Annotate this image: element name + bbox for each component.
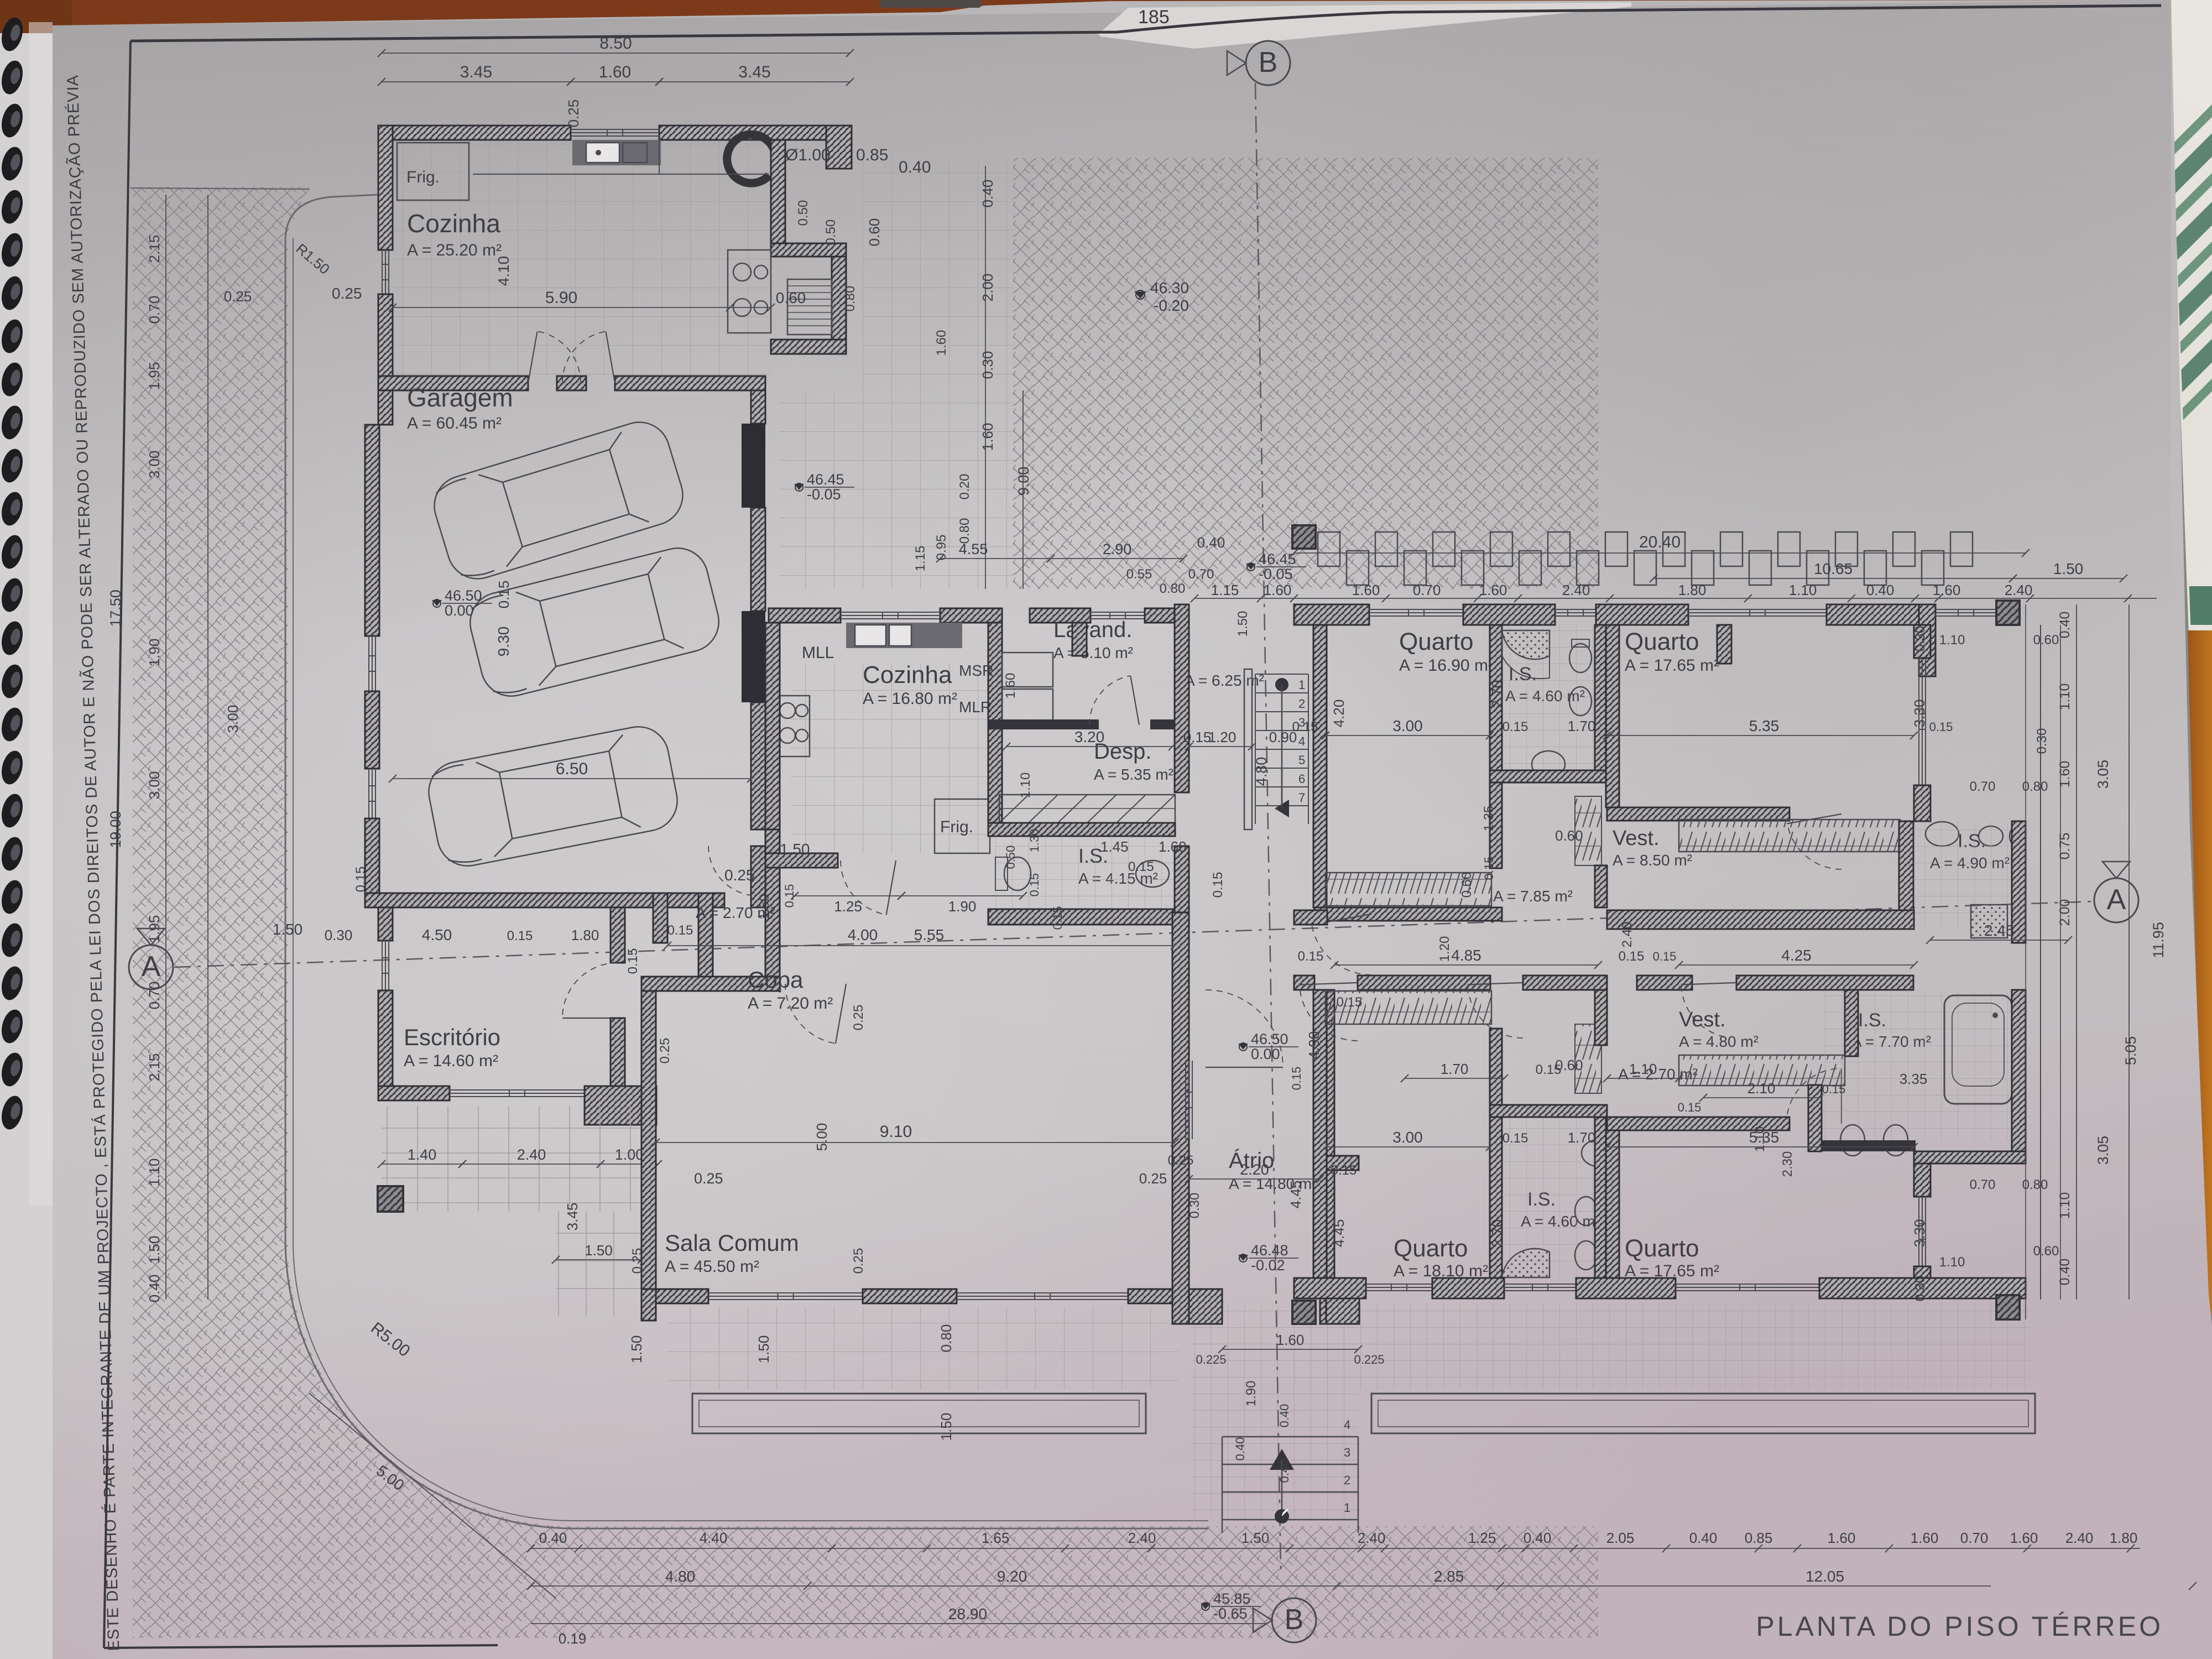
- svg-text:5.55: 5.55: [914, 926, 945, 943]
- svg-text:3.20: 3.20: [1074, 728, 1105, 745]
- svg-text:4.80: 4.80: [665, 1568, 696, 1585]
- svg-text:46.45: 46.45: [807, 471, 844, 488]
- svg-text:0.70: 0.70: [1413, 582, 1441, 598]
- svg-text:17.50: 17.50: [107, 589, 124, 627]
- svg-text:-0.20: -0.20: [1154, 297, 1189, 314]
- svg-text:0.40: 0.40: [2057, 1259, 2073, 1286]
- svg-text:0.80: 0.80: [2022, 1177, 2048, 1192]
- svg-text:0.70: 0.70: [1970, 1177, 1996, 1192]
- svg-text:2.15: 2.15: [146, 235, 163, 263]
- svg-text:1.00: 1.00: [615, 1146, 644, 1163]
- svg-text:1.70: 1.70: [1441, 1061, 1469, 1077]
- svg-text:0.25: 0.25: [851, 1248, 866, 1274]
- svg-text:2.40: 2.40: [1620, 922, 1635, 948]
- svg-text:2.15: 2.15: [146, 1053, 163, 1082]
- svg-text:5.35: 5.35: [1749, 1129, 1780, 1146]
- svg-text:0.15: 0.15: [1536, 1062, 1562, 1077]
- svg-text:MLR: MLR: [959, 698, 992, 716]
- svg-text:0.25: 0.25: [332, 285, 362, 302]
- svg-text:3.30: 3.30: [1911, 1219, 1928, 1248]
- svg-text:Copa: Copa: [748, 967, 804, 993]
- svg-text:11.95: 11.95: [2150, 922, 2167, 958]
- svg-text:1.80: 1.80: [571, 927, 599, 943]
- svg-text:0.15: 0.15: [353, 867, 368, 893]
- svg-text:1.15: 1.15: [913, 546, 928, 572]
- svg-text:0.25: 0.25: [1168, 1153, 1194, 1168]
- svg-text:0.40: 0.40: [979, 180, 996, 208]
- svg-text:0.25: 0.25: [565, 100, 582, 128]
- svg-text:-0.65: -0.65: [1213, 1605, 1248, 1622]
- svg-text:0.40: 0.40: [1866, 582, 1895, 598]
- svg-text:2.40: 2.40: [1358, 1530, 1386, 1546]
- svg-text:A: A: [2107, 884, 2126, 916]
- svg-text:4.80: 4.80: [1253, 757, 1270, 786]
- svg-text:4.85: 4.85: [1451, 947, 1481, 964]
- svg-text:0.50: 0.50: [1004, 846, 1018, 869]
- svg-text:1.15: 1.15: [1211, 582, 1239, 598]
- svg-text:3.45: 3.45: [460, 63, 492, 81]
- svg-text:1.60: 1.60: [1276, 1332, 1305, 1348]
- svg-text:1.10: 1.10: [1629, 1061, 1657, 1077]
- svg-text:5: 5: [1298, 753, 1305, 767]
- svg-text:6.50: 6.50: [556, 760, 588, 778]
- svg-text:28.90: 28.90: [948, 1605, 987, 1623]
- svg-text:2.30: 2.30: [1780, 1151, 1795, 1177]
- svg-text:0.15: 0.15: [1503, 1131, 1528, 1146]
- svg-text:0.15: 0.15: [1822, 1082, 1846, 1096]
- svg-text:1.50: 1.50: [2053, 560, 2084, 577]
- svg-text:45.85: 45.85: [1213, 1590, 1251, 1607]
- svg-text:46.48: 46.48: [1251, 1242, 1288, 1259]
- svg-text:0.60: 0.60: [2033, 633, 2059, 648]
- svg-text:1.10: 1.10: [146, 1159, 163, 1187]
- svg-text:0.25: 0.25: [694, 1170, 723, 1187]
- svg-text:3.35: 3.35: [1900, 1071, 1928, 1087]
- svg-text:1.50: 1.50: [938, 1413, 954, 1441]
- svg-text:19.00: 19.00: [107, 811, 124, 848]
- svg-text:MLL: MLL: [802, 644, 834, 662]
- svg-text:1.10: 1.10: [1018, 773, 1033, 799]
- svg-text:0.15: 0.15: [1292, 719, 1318, 734]
- svg-text:3.00: 3.00: [1392, 1129, 1423, 1146]
- svg-text:1.25: 1.25: [1468, 1530, 1496, 1546]
- svg-text:12.05: 12.05: [1806, 1568, 1844, 1585]
- svg-text:185: 185: [1138, 7, 1170, 28]
- svg-text:46.50: 46.50: [1251, 1031, 1288, 1047]
- svg-text:0.75: 0.75: [2057, 833, 2073, 860]
- svg-text:4: 4: [1344, 1418, 1350, 1432]
- svg-text:0.60: 0.60: [1459, 872, 1474, 898]
- svg-text:0.15: 0.15: [1128, 859, 1154, 874]
- svg-text:Quarto: Quarto: [1399, 628, 1474, 655]
- svg-text:0.15: 0.15: [667, 923, 693, 938]
- svg-text:0.15: 0.15: [1503, 719, 1528, 734]
- svg-text:1.65: 1.65: [982, 1530, 1010, 1546]
- svg-text:1.60: 1.60: [1479, 582, 1507, 598]
- svg-text:0.19: 0.19: [559, 1630, 587, 1647]
- svg-text:1.60: 1.60: [1911, 1530, 1939, 1546]
- svg-text:5.05: 5.05: [2122, 1036, 2139, 1066]
- svg-text:0.15: 0.15: [1331, 1163, 1357, 1178]
- svg-text:Frig.: Frig.: [406, 168, 440, 186]
- svg-text:9.10: 9.10: [880, 1123, 912, 1141]
- svg-text:A = 8.50 m²: A = 8.50 m²: [1613, 852, 1692, 869]
- svg-text:0.80: 0.80: [2022, 779, 2048, 794]
- svg-text:0.25: 0.25: [630, 1248, 645, 1274]
- svg-text:1.60: 1.60: [979, 423, 996, 451]
- svg-text:A = 5.10 m²: A = 5.10 m²: [1053, 644, 1133, 661]
- svg-text:2.40: 2.40: [517, 1146, 546, 1163]
- svg-text:0.15: 0.15: [1929, 720, 1953, 734]
- svg-text:0.50: 0.50: [796, 200, 811, 226]
- svg-text:0.40: 0.40: [1233, 1437, 1247, 1461]
- svg-text:2: 2: [1344, 1473, 1350, 1487]
- svg-text:1.60: 1.60: [599, 63, 631, 81]
- svg-text:Quarto: Quarto: [1394, 1235, 1468, 1262]
- svg-text:0.40: 0.40: [146, 1275, 163, 1303]
- svg-text:2.20: 2.20: [1240, 1161, 1269, 1178]
- svg-text:0.60: 0.60: [776, 289, 806, 306]
- svg-text:9.00: 9.00: [1015, 467, 1032, 496]
- svg-text:4.20: 4.20: [1331, 700, 1347, 728]
- svg-text:0.15: 0.15: [1051, 906, 1065, 930]
- svg-text:A: A: [142, 951, 161, 983]
- svg-text:Vest.: Vest.: [1613, 827, 1660, 850]
- svg-text:0.70: 0.70: [146, 296, 163, 324]
- svg-text:2.10: 2.10: [1747, 1080, 1776, 1097]
- svg-text:0.40: 0.40: [539, 1530, 567, 1546]
- svg-text:A = 16.90 m²: A = 16.90 m²: [1399, 656, 1494, 675]
- svg-text:0.15: 0.15: [1211, 872, 1225, 898]
- svg-text:4.25: 4.25: [1781, 947, 1812, 964]
- svg-text:B: B: [1285, 1604, 1304, 1636]
- svg-text:3.45: 3.45: [564, 1203, 581, 1231]
- svg-text:Frig.: Frig.: [940, 818, 973, 836]
- svg-text:1.60: 1.60: [1159, 838, 1187, 855]
- svg-text:-0.02: -0.02: [1251, 1257, 1285, 1274]
- svg-text:-0.05: -0.05: [1259, 566, 1293, 582]
- svg-text:1.60: 1.60: [1264, 582, 1292, 598]
- svg-text:2.00: 2.00: [979, 274, 996, 302]
- svg-text:9.20: 9.20: [997, 1568, 1027, 1585]
- svg-text:2.40: 2.40: [2065, 1530, 2094, 1546]
- svg-text:0.70: 0.70: [1960, 1530, 1989, 1546]
- svg-text:1.60: 1.60: [1828, 1530, 1856, 1546]
- svg-text:0.30: 0.30: [2034, 728, 2049, 754]
- svg-text:1.20: 1.20: [1437, 936, 1452, 962]
- svg-text:0.70: 0.70: [1970, 779, 1996, 794]
- svg-text:1.10: 1.10: [2057, 1192, 2073, 1219]
- svg-text:0.70: 0.70: [1188, 567, 1214, 582]
- svg-text:0.30: 0.30: [325, 927, 353, 943]
- svg-text:1.25: 1.25: [834, 898, 862, 915]
- svg-text:1.35: 1.35: [1481, 806, 1496, 832]
- svg-text:Quarto: Quarto: [1625, 628, 1699, 655]
- svg-text:0.15: 0.15: [1298, 949, 1324, 964]
- svg-text:0.15: 0.15: [1653, 950, 1677, 963]
- svg-text:46.45: 46.45: [1259, 551, 1296, 567]
- svg-text:1.90: 1.90: [1244, 1381, 1259, 1407]
- svg-text:Garagem: Garagem: [407, 383, 513, 412]
- svg-text:0.55: 0.55: [1126, 567, 1152, 582]
- svg-text:4.50: 4.50: [422, 926, 452, 943]
- svg-text:0.15: 0.15: [1619, 949, 1645, 964]
- svg-text:20.40: 20.40: [1639, 533, 1681, 551]
- svg-text:0.40: 0.40: [1277, 1459, 1291, 1483]
- svg-text:0.60: 0.60: [2033, 1244, 2059, 1259]
- svg-text:0.15: 0.15: [495, 581, 512, 609]
- svg-text:A = 5.35 m²: A = 5.35 m²: [1094, 766, 1173, 783]
- svg-text:0.80: 0.80: [938, 1324, 954, 1353]
- svg-text:0.80: 0.80: [1160, 581, 1186, 596]
- svg-text:0.15: 0.15: [1482, 857, 1496, 880]
- svg-text:1.70: 1.70: [1568, 718, 1596, 734]
- svg-text:0.15: 0.15: [507, 928, 533, 943]
- svg-text:4: 4: [1298, 734, 1305, 748]
- svg-text:1.10: 1.10: [1939, 1255, 1965, 1270]
- svg-text:0.30: 0.30: [1187, 1193, 1202, 1219]
- svg-text:0.30: 0.30: [1913, 626, 1928, 652]
- svg-text:2.70: 2.70: [1489, 1219, 1505, 1248]
- svg-text:2.05: 2.05: [1606, 1530, 1635, 1546]
- svg-text:1.10: 1.10: [1939, 633, 1965, 648]
- svg-text:2.90: 2.90: [1103, 541, 1132, 557]
- svg-text:Cozinha: Cozinha: [863, 661, 952, 688]
- svg-text:3.05: 3.05: [2095, 1136, 2111, 1165]
- svg-text:A = 7.85 m²: A = 7.85 m²: [1493, 888, 1573, 905]
- svg-text:A = 45.50 m²: A = 45.50 m²: [665, 1258, 759, 1276]
- svg-text:0.15: 0.15: [1290, 1067, 1303, 1091]
- svg-text:0.40: 0.40: [1524, 1530, 1552, 1546]
- svg-text:0.50: 0.50: [823, 220, 838, 246]
- svg-text:Vest.: Vest.: [1679, 1008, 1726, 1031]
- svg-text:2.70: 2.70: [1489, 680, 1505, 708]
- svg-text:1.50: 1.50: [780, 841, 810, 858]
- svg-text:Escritório: Escritório: [404, 1024, 500, 1050]
- svg-text:0.60: 0.60: [866, 218, 883, 247]
- svg-text:1.60: 1.60: [1933, 582, 1961, 598]
- svg-text:46.30: 46.30: [1150, 279, 1189, 296]
- svg-text:A = 7.20 m²: A = 7.20 m²: [748, 994, 833, 1013]
- svg-text:1.60: 1.60: [934, 330, 949, 356]
- svg-text:Ø1.00: Ø1.00: [785, 146, 831, 164]
- svg-text:0.30: 0.30: [979, 351, 996, 379]
- svg-text:2.40: 2.40: [1128, 1530, 1156, 1546]
- svg-text:0.70: 0.70: [146, 982, 163, 1010]
- svg-text:5.90: 5.90: [545, 289, 577, 307]
- svg-text:0.25: 0.25: [851, 1005, 866, 1031]
- svg-text:1.90: 1.90: [146, 639, 163, 667]
- svg-text:0.85: 0.85: [856, 146, 888, 164]
- svg-text:0.80: 0.80: [957, 518, 972, 544]
- svg-text:1.40: 1.40: [408, 1146, 437, 1163]
- svg-text:MSR: MSR: [959, 662, 993, 679]
- svg-text:46.50: 46.50: [445, 587, 482, 604]
- svg-text:Sala Comum: Sala Comum: [665, 1230, 799, 1256]
- svg-text:8.50: 8.50: [599, 34, 632, 53]
- svg-text:A = 14.60 m²: A = 14.60 m²: [404, 1052, 498, 1070]
- svg-text:0.40: 0.40: [1277, 1404, 1291, 1428]
- svg-text:5.35: 5.35: [1749, 717, 1780, 734]
- svg-text:0.15: 0.15: [1027, 873, 1041, 897]
- svg-text:0.20: 0.20: [957, 474, 972, 500]
- svg-text:1.60: 1.60: [2057, 761, 2073, 788]
- svg-text:2.40: 2.40: [1562, 582, 1590, 598]
- svg-text:0.00: 0.00: [445, 602, 474, 619]
- svg-text:B: B: [1259, 46, 1278, 79]
- svg-text:Lavand.: Lavand.: [1053, 618, 1132, 642]
- svg-text:A = 4.80 m²: A = 4.80 m²: [1679, 1033, 1759, 1050]
- svg-text:2.40: 2.40: [2005, 582, 2033, 598]
- svg-text:1.50: 1.50: [1241, 1530, 1270, 1546]
- svg-text:3.45: 3.45: [738, 63, 770, 81]
- svg-text:1.50: 1.50: [273, 921, 303, 938]
- svg-text:1.20: 1.20: [1208, 729, 1237, 745]
- svg-text:1.95: 1.95: [146, 362, 163, 390]
- svg-text:Quarto: Quarto: [1625, 1235, 1699, 1262]
- svg-text:1.10: 1.10: [1789, 582, 1817, 598]
- svg-text:A = 17.65 m²: A = 17.65 m²: [1625, 656, 1719, 675]
- svg-text:1.50: 1.50: [585, 1242, 613, 1259]
- svg-text:1.90: 1.90: [948, 898, 977, 915]
- svg-text:2.85: 2.85: [1434, 1568, 1464, 1585]
- svg-text:0.15: 0.15: [1183, 729, 1212, 745]
- svg-text:0.25: 0.25: [1139, 1170, 1167, 1187]
- svg-text:0.225: 0.225: [1354, 1353, 1384, 1366]
- svg-text:1.60: 1.60: [2010, 1530, 2038, 1546]
- svg-text:7: 7: [1298, 791, 1305, 805]
- svg-text:0.15: 0.15: [1678, 1100, 1702, 1114]
- svg-text:3.05: 3.05: [2095, 760, 2111, 789]
- svg-text:0.60: 0.60: [1555, 827, 1583, 844]
- svg-text:1.45: 1.45: [1100, 838, 1129, 855]
- svg-text:4.90: 4.90: [1306, 1031, 1322, 1060]
- svg-text:0.40: 0.40: [2057, 612, 2073, 639]
- svg-text:1.10: 1.10: [2057, 684, 2073, 711]
- svg-text:3.00: 3.00: [146, 451, 163, 479]
- svg-text:0.25: 0.25: [658, 1038, 672, 1064]
- svg-text:3.00: 3.00: [146, 771, 163, 800]
- svg-text:3.00: 3.00: [225, 705, 241, 733]
- svg-text:9.30: 9.30: [495, 627, 512, 657]
- svg-text:0.25: 0.25: [224, 288, 252, 305]
- svg-text:0.15: 0.15: [625, 948, 640, 974]
- svg-text:A = 60.45 m²: A = 60.45 m²: [407, 414, 502, 432]
- svg-text:3: 3: [1344, 1446, 1350, 1459]
- svg-text:1.80: 1.80: [2110, 1530, 2138, 1546]
- svg-text:1.30: 1.30: [1027, 829, 1041, 853]
- svg-text:4.00: 4.00: [848, 926, 878, 943]
- svg-text:3.30: 3.30: [1911, 700, 1928, 728]
- svg-text:2.45: 2.45: [1984, 922, 2015, 939]
- svg-text:4.55: 4.55: [959, 541, 988, 557]
- svg-text:PLANTA DO PISO TÉRREO: PLANTA DO PISO TÉRREO: [1756, 1611, 2163, 1642]
- svg-text:0.40: 0.40: [899, 158, 931, 176]
- svg-text:1.50: 1.50: [1235, 611, 1250, 637]
- svg-text:4.45: 4.45: [1287, 1181, 1304, 1209]
- svg-text:0.85: 0.85: [1745, 1530, 1773, 1546]
- svg-text:4.40: 4.40: [700, 1530, 728, 1546]
- svg-text:1.50: 1.50: [146, 1236, 163, 1264]
- svg-text:0.225: 0.225: [1196, 1353, 1226, 1366]
- svg-text:1: 1: [1298, 678, 1305, 692]
- svg-text:1.50: 1.50: [757, 894, 772, 920]
- svg-text:1.70: 1.70: [1568, 1129, 1596, 1146]
- svg-text:0.25: 0.25: [724, 867, 755, 884]
- svg-text:1.50: 1.50: [628, 1335, 645, 1364]
- svg-text:1.50: 1.50: [755, 1335, 772, 1364]
- svg-text:2: 2: [1298, 697, 1305, 711]
- svg-text:4.45: 4.45: [1331, 1219, 1347, 1248]
- svg-text:0.80: 0.80: [843, 286, 858, 312]
- svg-text:1.60: 1.60: [1352, 582, 1380, 598]
- svg-text:2.00: 2.00: [2057, 899, 2073, 926]
- svg-text:0.15: 0.15: [1337, 995, 1363, 1010]
- svg-text:0.30: 0.30: [1913, 1276, 1928, 1302]
- svg-text:A = 25.20 m²: A = 25.20 m²: [407, 241, 502, 259]
- svg-text:5.00: 5.00: [813, 1123, 830, 1151]
- svg-text:0.40: 0.40: [1197, 534, 1225, 551]
- svg-text:A = 16.80 m²: A = 16.80 m²: [863, 690, 957, 708]
- svg-text:1.60: 1.60: [1003, 673, 1018, 699]
- svg-text:1.80: 1.80: [1678, 582, 1707, 598]
- svg-text:6: 6: [1298, 772, 1305, 786]
- svg-text:0.40: 0.40: [1689, 1530, 1718, 1546]
- svg-text:0.15: 0.15: [782, 884, 796, 908]
- svg-text:3.00: 3.00: [1392, 717, 1423, 734]
- svg-text:0.00: 0.00: [1251, 1046, 1280, 1062]
- svg-text:10.65: 10.65: [1814, 560, 1853, 577]
- svg-text:4.10: 4.10: [495, 256, 512, 286]
- svg-text:1: 1: [1344, 1501, 1350, 1515]
- svg-text:Cozinha: Cozinha: [407, 209, 500, 238]
- svg-text:-0.05: -0.05: [807, 486, 841, 503]
